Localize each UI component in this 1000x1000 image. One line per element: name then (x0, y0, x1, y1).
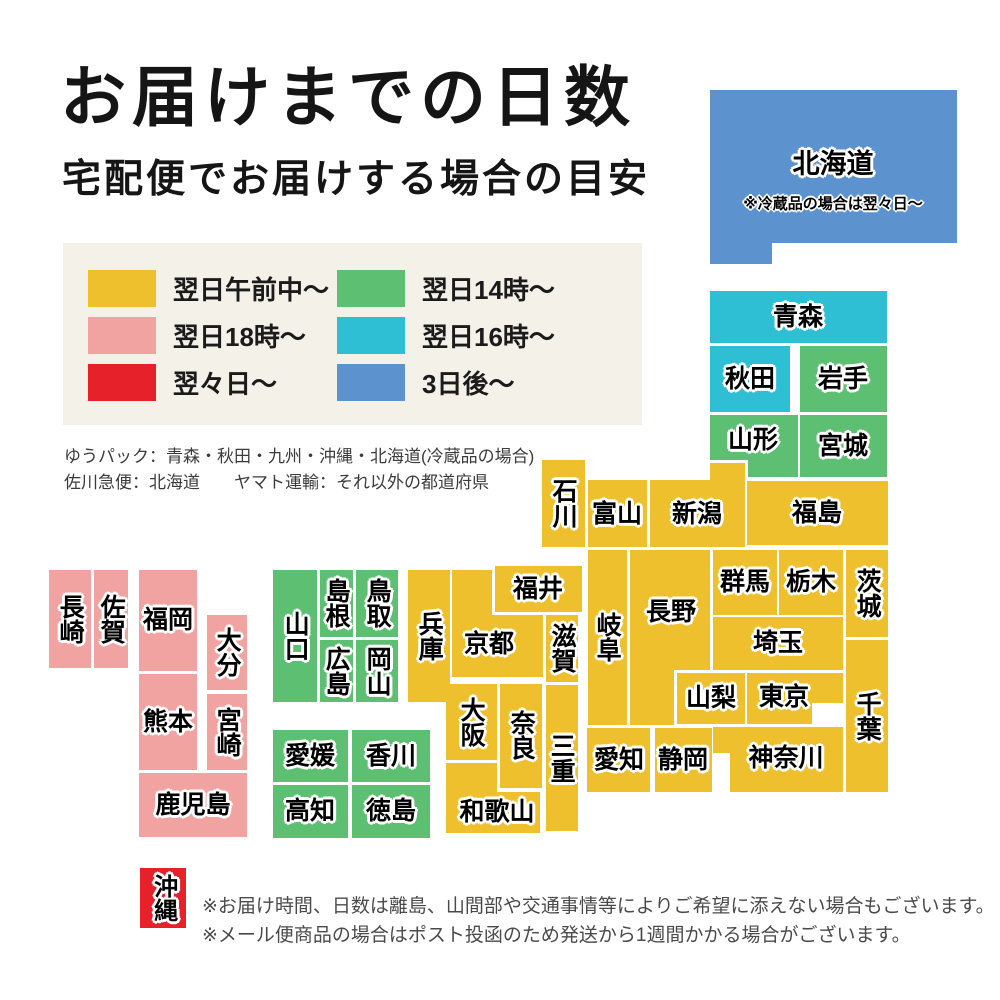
pref-gunma-label: 群馬 (720, 569, 770, 595)
pref-fukushima-label: 福島 (792, 500, 842, 526)
pref-kagawa-label: 香川 (366, 743, 416, 769)
pref-hyogo-label: 兵庫 (416, 611, 442, 661)
japan-map: 北海道※冷蔵品の場合は翌々日〜青森秋田岩手山形宮城福島新潟富山石川群馬栃木茨城埼… (0, 0, 1000, 1000)
pref-ishikawa-label: 石川 (550, 478, 576, 528)
pref-tokushima-label: 徳島 (366, 798, 416, 824)
pref-kanagawa-label: 神奈川 (748, 745, 823, 771)
pref-hokkaido-label: 北海道 (793, 150, 874, 178)
pref-mie-label: 三重 (548, 733, 574, 783)
pref-yamagata-label: 山形 (728, 427, 778, 453)
pref-yamanashi-label: 山梨 (686, 685, 736, 711)
pref-fukui-label: 福井 (513, 576, 563, 602)
pref-okinawa-label: 沖縄 (150, 874, 175, 922)
pref-gifu-label: 岐阜 (594, 612, 620, 662)
pref-oita-label: 大分 (214, 627, 240, 677)
pref-iwate-label: 岩手 (818, 366, 868, 392)
pref-aichi-label: 愛知 (594, 747, 644, 773)
pref-akita-label: 秋田 (725, 366, 775, 392)
pref-kumamoto-label: 熊本 (143, 709, 193, 735)
pref-tochigi-label: 栃木 (786, 569, 836, 595)
pref-nagano-area (630, 670, 674, 725)
pref-ehime-label: 愛媛 (285, 743, 335, 769)
pref-hiroshima-label: 広島 (323, 646, 349, 696)
pref-nara-label: 奈良 (508, 710, 534, 760)
pref-tottori-label: 鳥取 (364, 578, 390, 628)
pref-hokkaido-note: ※冷蔵品の場合は翌々日〜 (743, 193, 923, 214)
pref-nagasaki-label: 長崎 (57, 594, 83, 644)
pref-saga-label: 佐賀 (98, 594, 124, 644)
delivery-days-infographic: お届けまでの日数 宅配便でお届けする場合の目安 翌日午前中〜翌日18時〜翌々日〜… (0, 0, 1000, 1000)
pref-shimane-label: 島根 (323, 578, 349, 628)
pref-yamaguchi-label: 山口 (282, 611, 308, 661)
pref-niigata-area (710, 463, 745, 480)
pref-shiga-label: 滋賀 (549, 623, 575, 673)
footer-note-line2: ※メール便商品の場合はポスト投函のため発送から1週間かかる場合がございます。 (202, 921, 995, 950)
pref-yamagata-area (748, 460, 798, 477)
footer-note-line1: ※お届け時間、日数は離島、山間部や交通事情等によりご希望に添えない場合もございま… (202, 892, 995, 921)
pref-ibaraki-label: 茨城 (854, 568, 880, 618)
pref-chiba-label: 千葉 (854, 691, 880, 741)
pref-tokyo-label: 東京 (759, 684, 809, 710)
pref-kyoto-label: 京都 (464, 631, 514, 657)
pref-shizuoka-label: 静岡 (658, 747, 708, 773)
pref-okayama-label: 岡山 (364, 646, 390, 696)
pref-saitama-label: 埼玉 (753, 630, 803, 656)
footer-notes: ※お届け時間、日数は離島、山間部や交通事情等によりご希望に添えない場合もございま… (202, 892, 995, 950)
pref-miyagi-label: 宮城 (818, 433, 868, 459)
pref-kagoshima-label: 鹿児島 (155, 792, 230, 818)
pref-fukuoka-label: 福岡 (143, 607, 193, 633)
pref-kochi-label: 高知 (285, 798, 335, 824)
pref-osaka-label: 大阪 (458, 697, 484, 747)
pref-wakayama-label: 和歌山 (459, 799, 534, 825)
pref-miyazaki-label: 宮崎 (214, 707, 240, 757)
pref-aomori-label: 青森 (773, 304, 823, 330)
pref-nagano-label: 長野 (646, 599, 696, 625)
pref-toyama-label: 富山 (592, 501, 642, 527)
pref-hokkaido-area (710, 243, 772, 264)
pref-niigata-label: 新潟 (672, 501, 722, 527)
